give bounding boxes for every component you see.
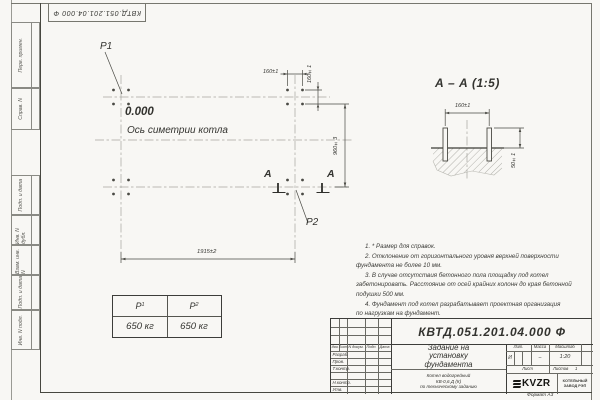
p1-leader-label: P1 — [100, 42, 112, 52]
drawing-title: Задание на установку фундамента — [391, 344, 506, 369]
section-letter-left: А — [264, 169, 272, 180]
row-utv: Утв. — [333, 388, 343, 392]
note-line: 4. Фундамент под котел разрабатывает про… — [356, 300, 576, 310]
lit-header: Лит. — [506, 344, 531, 351]
company-name: КОТЕЛЬНЫЙ ЗАВОД РЭП — [557, 373, 593, 394]
col-ndokum: N докум. — [347, 344, 365, 351]
notes: 1. * Размер для справок. 2. Отклонение о… — [356, 242, 576, 319]
p2-leader-label: P2 — [306, 218, 318, 228]
note-line: 2. Отклонение от горизонтального уровня … — [356, 252, 576, 262]
logo-word: KVZR — [522, 378, 550, 389]
lit-value: И — [506, 351, 514, 365]
doc-number: КВТД.051.201.04.000 Ф — [391, 319, 593, 344]
format-note: Формат А3 — [527, 394, 553, 399]
section-dim-50: 50±1 — [512, 150, 518, 168]
mass-header: Масса — [531, 344, 549, 351]
kvzr-logo: KVZR — [506, 373, 557, 394]
note-line: 3. В случае отсутствия бетонного пола пл… — [356, 271, 576, 281]
sheets-label: Листов — [553, 367, 568, 371]
col-list: Лист — [339, 344, 347, 351]
note-line: забетонировать. Расстояние от осей крайн… — [356, 280, 576, 290]
load-table: P1 P2 650 кг 650 кг — [112, 295, 222, 338]
mass-value: – — [531, 351, 549, 365]
section-title: А – А (1:5) — [435, 77, 500, 89]
row-razrab: Разраб. — [333, 353, 349, 357]
drawing-sheet: КВТД.051.201.04.000 Ф Перв. примен. Спра… — [0, 0, 600, 400]
scale-header: Масштаб — [549, 344, 581, 351]
anchor-bolt-dots — [112, 89, 304, 196]
logo-waves-icon — [513, 380, 521, 387]
product-subtitle: Котел водогрейный КВ-0,6 Д (К) по технич… — [391, 369, 506, 394]
sheets-value: 1 — [575, 367, 577, 371]
dim-960: 960±3 — [334, 127, 340, 155]
sheet-label: Лист — [506, 365, 549, 373]
row-tkontr: Т.контр. — [333, 367, 351, 371]
boiler-axis-label: Ось симетрии котла — [127, 126, 228, 136]
note-line: подушки 500 мм. — [356, 290, 576, 300]
col-izm: Изм. — [331, 344, 339, 351]
title-block: КВТД.051.201.04.000 Ф Изм. Лист N докум.… — [330, 318, 592, 393]
level-mark: 0.000 — [125, 107, 154, 119]
load-p2-header: P2 — [167, 296, 221, 316]
section-dim-160: 160±1 — [455, 104, 470, 110]
row-prov: Пров. — [333, 360, 345, 364]
note-line: 1. * Размер для справок. — [356, 242, 576, 252]
dim-160-side: 160±1 — [308, 60, 314, 83]
section-cut-marks — [273, 183, 330, 193]
load-p1-header: P1 — [113, 296, 167, 316]
col-data: Дата — [378, 344, 391, 351]
dim-160-top: 160±1 — [263, 70, 278, 76]
col-podp: Подп. — [365, 344, 378, 351]
dim-1915: 1915±2 — [197, 250, 216, 256]
scale-value: 1:20 — [549, 351, 581, 365]
load-p2-value: 650 кг — [167, 316, 221, 337]
note-line: фундамента не более 10 мм. — [356, 261, 576, 271]
load-p1-value: 650 кг — [113, 316, 167, 337]
row-nkontr: Н.контр. — [333, 381, 352, 385]
section-letter-right: А — [327, 169, 335, 180]
